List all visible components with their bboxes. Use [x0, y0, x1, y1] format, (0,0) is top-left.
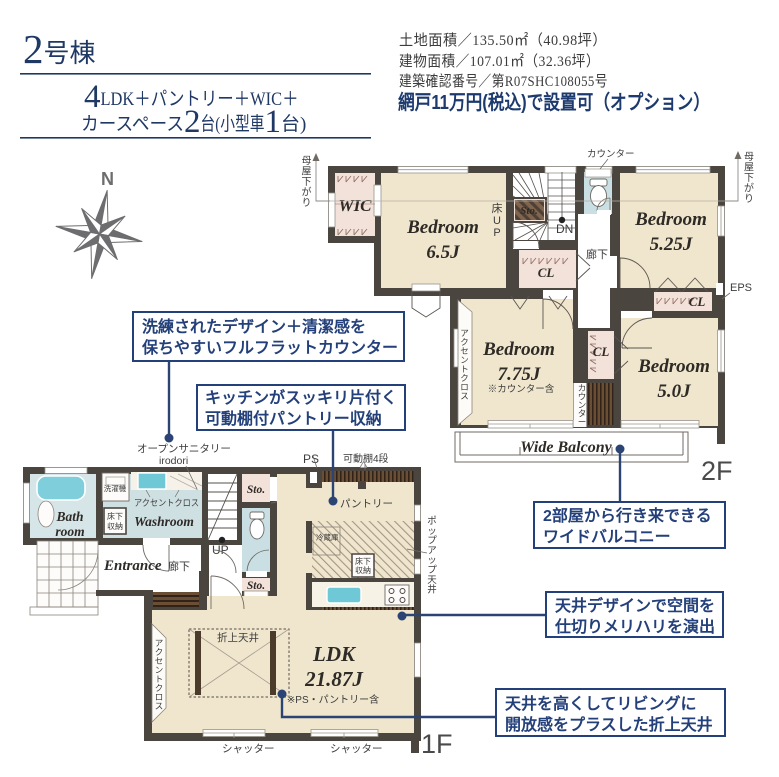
svg-text:天井デザインで空間を: 天井デザインで空間を: [555, 596, 715, 615]
svg-text:6.5J: 6.5J: [426, 242, 460, 263]
svg-text:N: N: [101, 169, 114, 189]
svg-text:ー: ー: [578, 417, 587, 427]
svg-text:シャッター: シャッター: [222, 743, 275, 755]
svg-text:ス: ス: [460, 391, 469, 401]
svg-text:Washroom: Washroom: [134, 514, 194, 529]
svg-text:廊下: 廊下: [168, 559, 190, 573]
svg-text:5.25J: 5.25J: [650, 234, 693, 255]
svg-text:収納: 収納: [355, 565, 371, 575]
svg-text:※カウンター含: ※カウンター含: [488, 383, 555, 395]
svg-text:PS: PS: [303, 452, 319, 466]
svg-text:保ちやすいフルフラットカウンター: 保ちやすいフルフラットカウンター: [141, 338, 398, 357]
svg-text:床下: 床下: [107, 511, 123, 521]
svg-text:アクセントクロス: アクセントクロス: [134, 498, 199, 508]
svg-text:DN: DN: [556, 222, 573, 236]
svg-text:井: 井: [427, 584, 437, 596]
svg-text:Sto.: Sto.: [247, 580, 265, 592]
svg-text:5.0J: 5.0J: [657, 381, 691, 402]
svg-text:網戸11万円(税込)で設置可（オプション）: 網戸11万円(税込)で設置可（オプション）: [398, 90, 710, 114]
svg-text:EPS: EPS: [730, 282, 752, 294]
svg-text:※PS・パントリー含: ※PS・パントリー含: [287, 693, 379, 706]
svg-text:Bedroom: Bedroom: [637, 356, 710, 377]
svg-text:床下: 床下: [355, 556, 371, 566]
svg-text:irodori: irodori: [159, 455, 188, 467]
svg-text:洗濯機: 洗濯機: [104, 483, 127, 493]
svg-text:が: が: [744, 182, 754, 195]
svg-text:1F: 1F: [421, 729, 453, 759]
svg-text:開放感をプラスした折上天井: 開放感をプラスした折上天井: [505, 715, 713, 734]
svg-text:り: り: [744, 193, 754, 205]
svg-text:ワイドバルコニー: ワイドバルコニー: [543, 528, 671, 546]
svg-text:収納: 収納: [107, 521, 123, 531]
svg-text:21.87J: 21.87J: [304, 667, 364, 691]
svg-text:LDK: LDK: [312, 642, 357, 666]
svg-text:り: り: [302, 197, 312, 209]
svg-text:U: U: [493, 215, 501, 227]
svg-text:屋: 屋: [302, 166, 312, 178]
svg-text:2F: 2F: [701, 456, 733, 486]
svg-text:Bath: Bath: [55, 509, 83, 524]
svg-text:下: 下: [744, 173, 754, 184]
svg-text:可動棚付パントリー収納: 可動棚付パントリー収納: [205, 409, 382, 428]
svg-text:折上天井: 折上天井: [217, 631, 259, 644]
svg-text:キッチンがスッキリ片付く: キッチンがスッキリ片付く: [205, 388, 397, 407]
svg-text:建築確認番号／第R07SHC108055号: 建築確認番号／第R07SHC108055号: [399, 72, 608, 90]
svg-text:床: 床: [492, 201, 503, 215]
svg-text:建物面積／107.01㎡（32.36坪）: 建物面積／107.01㎡（32.36坪）: [399, 53, 600, 70]
svg-text:仕切りメリハリを演出: 仕切りメリハリを演出: [554, 617, 715, 636]
svg-text:Bedroom: Bedroom: [482, 339, 555, 360]
svg-text:シャッター: シャッター: [330, 743, 383, 755]
svg-text:Sto.: Sto.: [247, 484, 265, 496]
svg-text:下: 下: [302, 177, 312, 188]
svg-text:可動棚4段: 可動棚4段: [343, 452, 389, 465]
svg-text:天井を高くしてリビングに: 天井を高くしてリビングに: [505, 694, 697, 713]
svg-text:土地面積／135.50㎡（40.98坪）: 土地面積／135.50㎡（40.98坪）: [399, 32, 607, 49]
svg-text:Bedroom: Bedroom: [634, 209, 707, 230]
svg-text:洗練されたデザイン＋清潔感を: 洗練されたデザイン＋清潔感を: [142, 317, 366, 336]
svg-text:Bedroom: Bedroom: [406, 217, 479, 238]
svg-text:ス: ス: [155, 701, 164, 711]
svg-text:CL: CL: [689, 294, 706, 309]
svg-text:CL: CL: [593, 344, 610, 359]
svg-text:カウンター: カウンター: [587, 149, 635, 160]
svg-text:廊下: 廊下: [586, 247, 608, 261]
svg-text:パントリー: パントリー: [340, 498, 393, 510]
svg-text:P: P: [493, 227, 500, 239]
svg-text:オープンサニタリー: オープンサニタリー: [137, 443, 231, 455]
svg-text:7.75J: 7.75J: [498, 364, 541, 385]
svg-text:WIC: WIC: [338, 196, 372, 215]
svg-text:Wide Balcony: Wide Balcony: [520, 439, 612, 456]
svg-text:屋: 屋: [744, 162, 754, 174]
svg-text:冷蔵庫: 冷蔵庫: [316, 532, 339, 542]
svg-text:母: 母: [302, 155, 312, 167]
svg-text:Sto.: Sto.: [520, 205, 537, 217]
svg-text:が: が: [302, 186, 312, 199]
svg-text:room: room: [55, 524, 84, 539]
svg-text:2部屋から行き来できる: 2部屋から行き来できる: [543, 506, 712, 525]
svg-text:Entrance: Entrance: [103, 558, 162, 574]
svg-text:母: 母: [744, 151, 754, 163]
svg-text:CL: CL: [538, 265, 555, 280]
